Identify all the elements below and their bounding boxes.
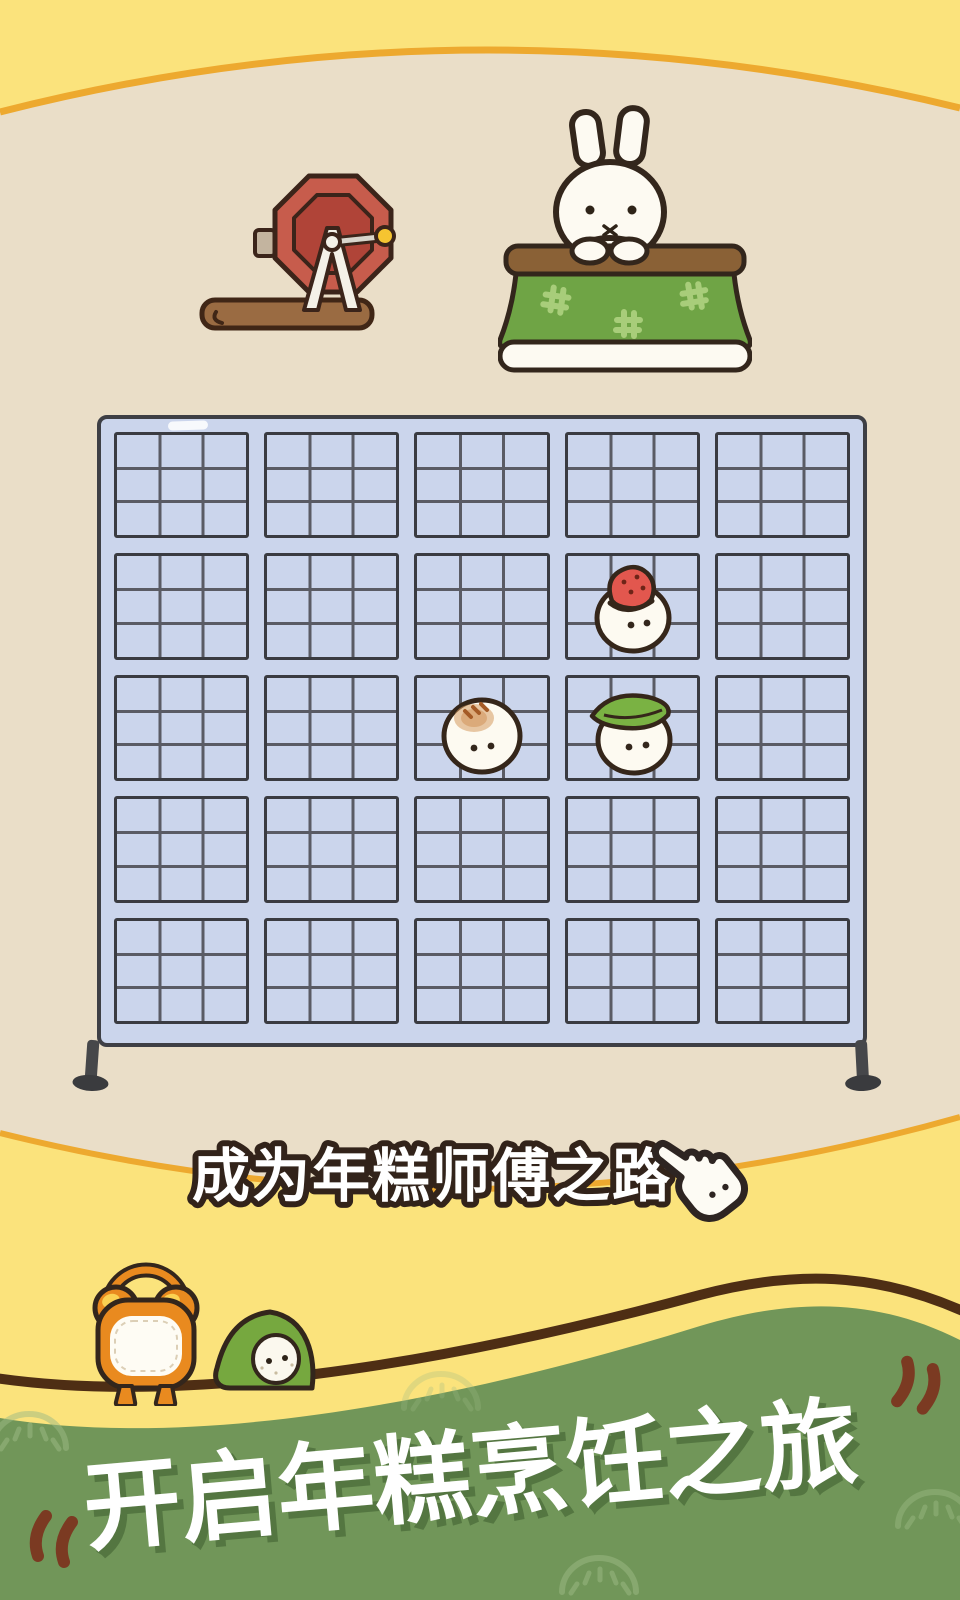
rack-slot-2-5[interactable]: [715, 553, 850, 659]
kotatsu-futon-base: [500, 342, 750, 370]
pointing-hand-icon: [644, 1120, 750, 1226]
gacha-lottery-machine[interactable]: [196, 170, 408, 338]
rack-slot-5-5[interactable]: [715, 918, 850, 1024]
alarm-clock-mochi: [86, 1256, 206, 1406]
rack-slot-3-1[interactable]: [114, 675, 249, 781]
rack-slot-5-4[interactable]: [565, 918, 700, 1024]
clock-foot: [116, 1386, 135, 1406]
rack-slot-4-4[interactable]: [565, 796, 700, 902]
rack-slot-3-5[interactable]: [715, 675, 850, 781]
plain-bun-mochi[interactable]: [434, 682, 530, 778]
rack-slot-2-1[interactable]: [114, 553, 249, 659]
rabbit-arm: [572, 239, 608, 263]
strawberry: [610, 567, 654, 608]
rabbit-eye: [628, 206, 637, 215]
rack-slot-4-3[interactable]: [414, 796, 549, 902]
rack-slot-5-3[interactable]: [414, 918, 549, 1024]
rack-slot-4-5[interactable]: [715, 796, 850, 902]
mochi-eye: [643, 742, 650, 749]
rack-slot-2-2[interactable]: [264, 553, 399, 659]
mochi-eye: [628, 621, 635, 628]
rack-slot-5-1[interactable]: [114, 918, 249, 1024]
caption-text-graphic: 成为年糕师傅之路: [150, 1118, 730, 1228]
rack-leg: [855, 1040, 869, 1083]
hooded-face: [253, 1335, 299, 1383]
rack-leg: [85, 1040, 100, 1083]
rack-slot-3-2[interactable]: [264, 675, 399, 781]
clock-foot: [156, 1386, 175, 1406]
rack-slot-1-4[interactable]: [565, 432, 700, 538]
rack-slot-1-2[interactable]: [264, 432, 399, 538]
rack-highlight: [168, 420, 208, 430]
mochi-eye: [471, 745, 478, 752]
machine-axle: [324, 234, 340, 250]
mochi-eye: [626, 744, 633, 751]
strawberry-mochi[interactable]: [584, 561, 680, 657]
rack-slot-1-1[interactable]: [114, 432, 249, 538]
rack-slot-2-3[interactable]: [414, 553, 549, 659]
open-quote-mark: [26, 1504, 90, 1576]
hooded-eye: [266, 1358, 272, 1364]
mochi-eye: [488, 743, 495, 750]
mochi-eye: [644, 619, 651, 626]
rack-slot-4-1[interactable]: [114, 796, 249, 902]
rack-slot-4-2[interactable]: [264, 796, 399, 902]
rack-slot-5-2[interactable]: [264, 918, 399, 1024]
machine-spout: [255, 230, 275, 256]
rabbit-eye: [586, 206, 595, 215]
game-screen: 成为年糕师傅之路: [0, 0, 960, 1600]
leaf-mochi[interactable]: [584, 682, 680, 778]
rabbit-at-kotatsu: [498, 100, 752, 374]
machine-knob: [376, 227, 394, 245]
rack-slot-1-3[interactable]: [414, 432, 549, 538]
green-hooded-mochi: [212, 1306, 324, 1398]
rack-slot-1-5[interactable]: [715, 432, 850, 538]
hooded-eye: [282, 1355, 288, 1361]
rabbit-arm: [611, 239, 647, 263]
rabbit-ears: [570, 107, 648, 168]
caption-label: 成为年糕师傅之路: [192, 1144, 672, 1209]
